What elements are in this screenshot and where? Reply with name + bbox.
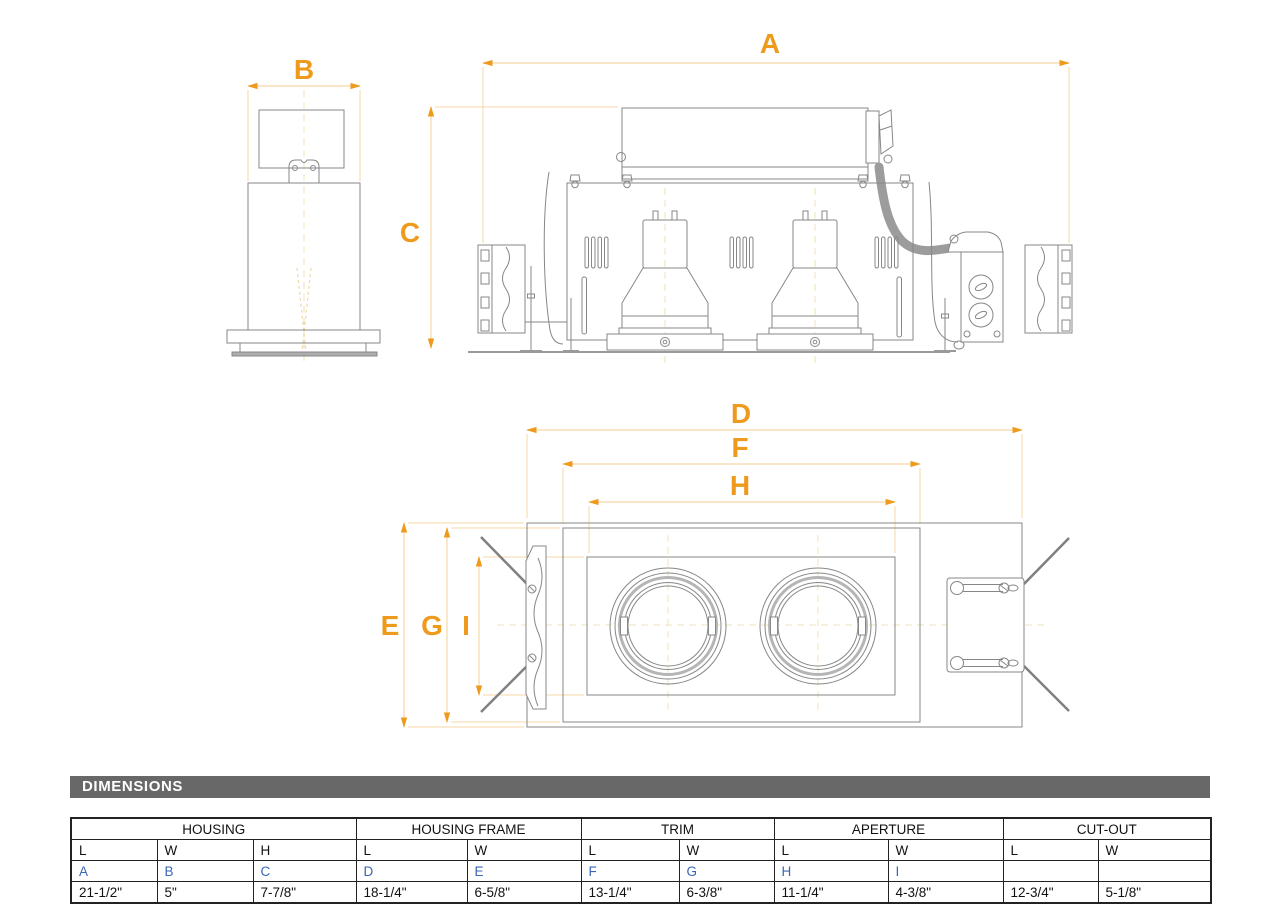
table-group-header: HOUSING FRAME: [356, 818, 581, 840]
spring-slot-right: [897, 277, 902, 337]
table-group-header: CUT-OUT: [1003, 818, 1211, 840]
mounting-plate-right: [947, 538, 1069, 711]
h-dimension: H: [589, 470, 895, 553]
table-value-cell: 13-1/4": [581, 882, 679, 904]
table-letter-cell: E: [467, 861, 581, 882]
vent-slots-right: [875, 237, 898, 268]
side-view: B: [227, 54, 380, 362]
dim-label-b: B: [294, 54, 314, 85]
hanger-rods: [520, 266, 956, 351]
spring-slot-left: [582, 277, 587, 334]
table-col-header: W: [1098, 840, 1211, 861]
table-col-header: L: [1003, 840, 1098, 861]
dim-label-d: D: [731, 398, 751, 429]
dim-label-h: H: [730, 470, 750, 501]
table-letter-cell: A: [71, 861, 157, 882]
vent-slots-left: [585, 237, 608, 268]
side-junction-box: [259, 110, 344, 168]
table-col-header: W: [467, 840, 581, 861]
aperture-outline: [587, 557, 895, 695]
front-view: A C: [400, 28, 1072, 368]
table-group-header: HOUSING: [71, 818, 356, 840]
table-col-header: L: [71, 840, 157, 861]
table-letter-cell: [1098, 861, 1211, 882]
table-letter-cell: D: [356, 861, 467, 882]
table-col-header: W: [679, 840, 774, 861]
flex-conduit: [879, 167, 950, 251]
left-wire: [544, 172, 563, 344]
table-col-header: W: [157, 840, 253, 861]
ballast-connector: [866, 110, 893, 163]
lamp-module-1: [607, 211, 723, 350]
hanger-bracket-right: [1025, 245, 1072, 333]
table-value-cell: 18-1/4": [356, 882, 467, 904]
table-value-cell: 7-7/8": [253, 882, 356, 904]
dimensions-title-bar: DIMENSIONS: [70, 776, 1210, 798]
dimensions-table: HOUSINGHOUSING FRAMETRIMAPERTURECUT-OUTL…: [70, 817, 1212, 904]
table-letter-cell: C: [253, 861, 356, 882]
table-value-cell: 11-1/4": [774, 882, 888, 904]
front-junction-box: [948, 232, 1003, 349]
drawing-canvas: B A C: [0, 0, 1280, 770]
table-letter-cell: I: [888, 861, 1003, 882]
table-col-header: W: [888, 840, 1003, 861]
table-col-header: L: [774, 840, 888, 861]
i-dimension: I: [462, 557, 584, 695]
ballast-box: [617, 108, 869, 179]
table-value-cell: 6-5/8": [467, 882, 581, 904]
table-letter-cell: B: [157, 861, 253, 882]
table-letter-cell: F: [581, 861, 679, 882]
table-letter-cell: [1003, 861, 1098, 882]
table-value-cell: 12-3/4": [1003, 882, 1098, 904]
table-value-cell: 4-3/8": [888, 882, 1003, 904]
dim-label-f: F: [731, 432, 748, 463]
dim-label-i: I: [462, 610, 470, 641]
table-group-header: TRIM: [581, 818, 774, 840]
dimensions-title: DIMENSIONS: [82, 778, 183, 795]
table-value-cell: 5-1/8": [1098, 882, 1211, 904]
table-col-header: L: [581, 840, 679, 861]
side-ceiling-plate: [232, 352, 377, 356]
table-value-cell: 21-1/2": [71, 882, 157, 904]
dim-label-g: G: [421, 610, 443, 641]
dim-label-a: A: [760, 28, 780, 59]
table-letter-cell: H: [774, 861, 888, 882]
dim-label-e: E: [381, 610, 400, 641]
d-dimension: D: [527, 398, 1022, 518]
dim-label-c: C: [400, 217, 420, 248]
lamp-module-2: [757, 211, 873, 350]
table-value-cell: 5": [157, 882, 253, 904]
table-col-header: L: [356, 840, 467, 861]
side-trim-base: [240, 343, 366, 352]
hanger-bracket-left: [478, 245, 567, 333]
table-col-header: H: [253, 840, 356, 861]
vent-slots-center: [730, 237, 753, 268]
technical-drawing-page: B A C: [0, 0, 1280, 920]
table-group-header: APERTURE: [774, 818, 1003, 840]
plan-view: D F H E G I: [381, 398, 1069, 727]
table-value-cell: 6-3/8": [679, 882, 774, 904]
table-letter-cell: G: [679, 861, 774, 882]
